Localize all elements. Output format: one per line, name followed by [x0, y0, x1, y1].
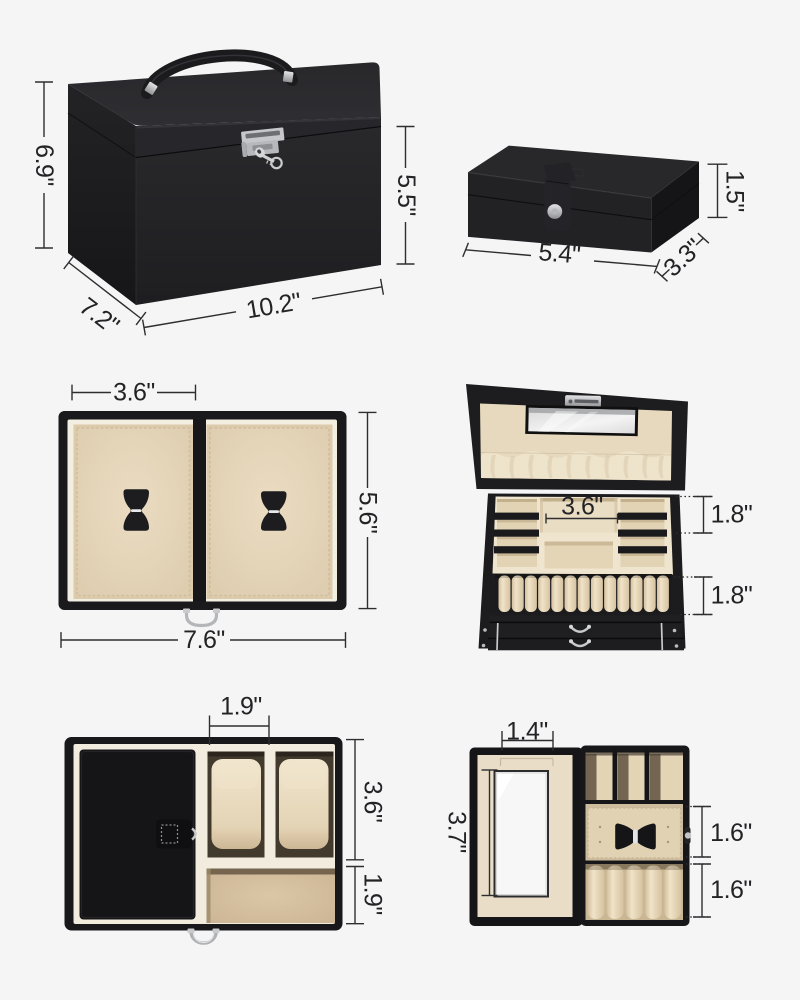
svg-text:1.8": 1.8" — [711, 582, 753, 610]
svg-text:1.6": 1.6" — [710, 876, 752, 904]
svg-text:3.6": 3.6" — [359, 781, 387, 823]
svg-text:5.4": 5.4" — [537, 238, 581, 270]
svg-text:7.6": 7.6" — [183, 626, 225, 654]
svg-text:3.6": 3.6" — [113, 379, 155, 407]
svg-text:3.7": 3.7" — [443, 811, 471, 853]
svg-text:3.6": 3.6" — [561, 493, 603, 521]
svg-text:1.4": 1.4" — [506, 718, 548, 746]
svg-text:1.9": 1.9" — [359, 873, 387, 915]
svg-text:1.8": 1.8" — [711, 501, 753, 529]
svg-text:6.9": 6.9" — [30, 144, 58, 186]
svg-text:5.6": 5.6" — [354, 492, 382, 534]
svg-text:1.6": 1.6" — [710, 819, 752, 847]
svg-text:5.5": 5.5" — [392, 174, 420, 216]
svg-text:1.5": 1.5" — [721, 170, 749, 212]
svg-text:1.9": 1.9" — [220, 693, 262, 721]
